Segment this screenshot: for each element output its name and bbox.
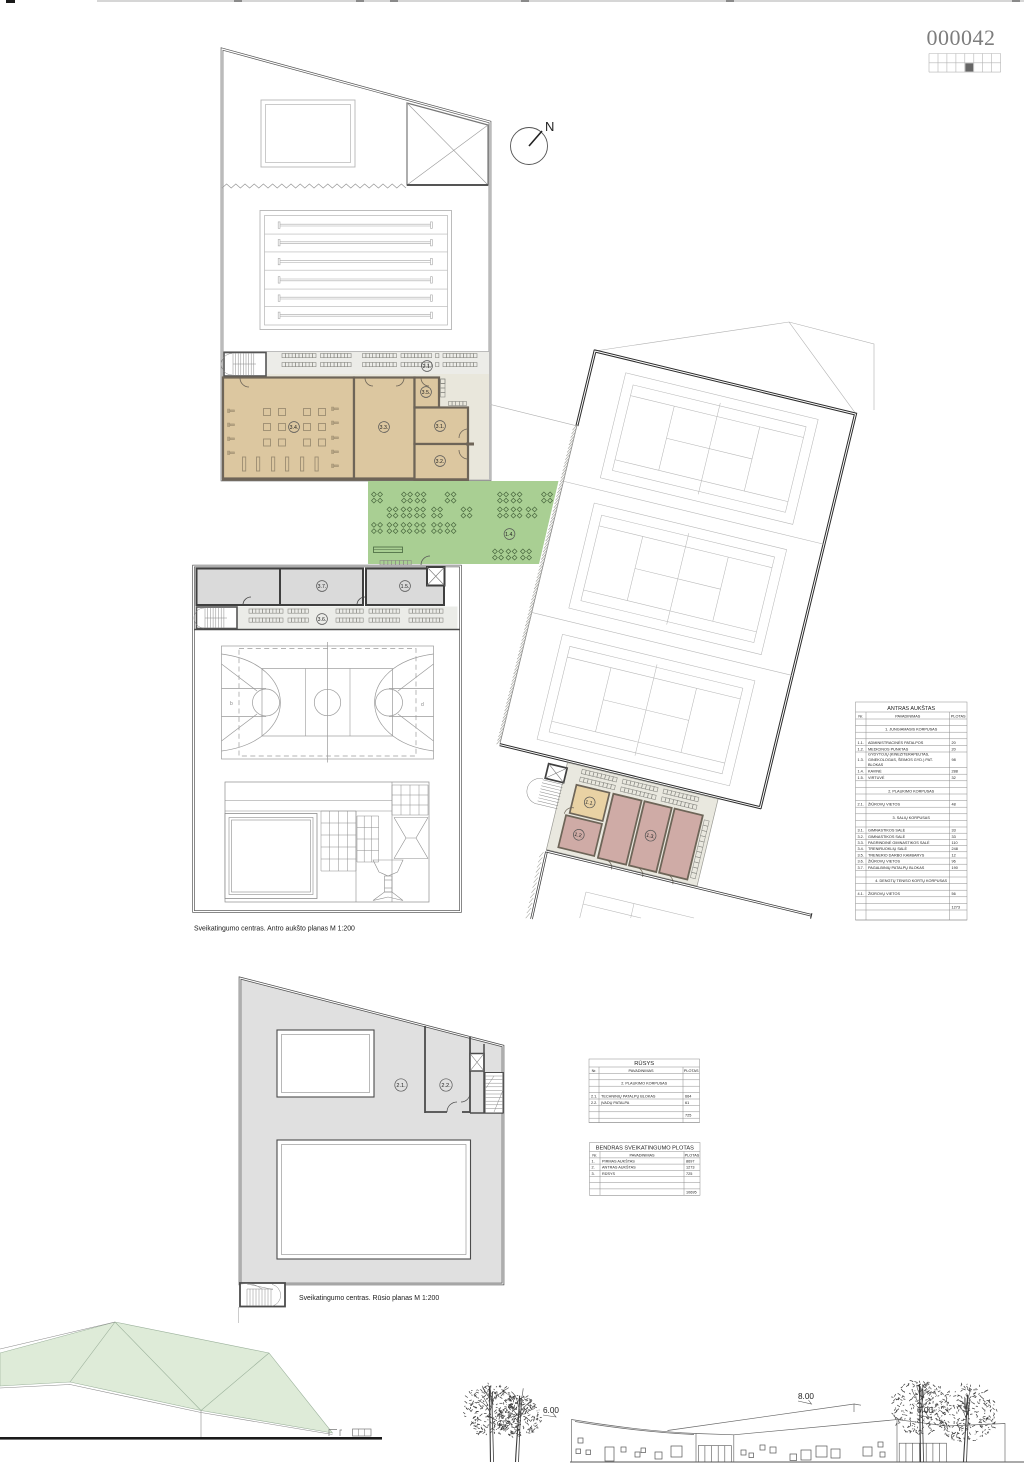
svg-text:PLOTAS: PLOTAS: [685, 1153, 700, 1157]
svg-text:96: 96: [952, 860, 956, 864]
svg-text:1273: 1273: [686, 1166, 694, 1170]
svg-text:3.6.: 3.6.: [318, 617, 327, 623]
svg-text:d: d: [421, 702, 424, 708]
svg-text:3.4.: 3.4.: [290, 425, 299, 431]
svg-text:12: 12: [952, 853, 956, 857]
svg-text:ŽIŪROVŲ VIETOS: ŽIŪROVŲ VIETOS: [868, 802, 900, 807]
svg-text:PAGRINDINĖ GIMNASTIKOS SALĖ: PAGRINDINĖ GIMNASTIKOS SALĖ: [868, 840, 930, 845]
svg-text:725: 725: [686, 1172, 692, 1176]
svg-text:20: 20: [952, 741, 956, 745]
svg-text:PLOTAS: PLOTAS: [951, 714, 966, 718]
svg-text:PAVADINIMAS: PAVADINIMAS: [895, 714, 921, 718]
svg-text:48: 48: [952, 803, 956, 807]
svg-text:Nr.: Nr.: [592, 1069, 597, 1073]
svg-text:190: 190: [952, 866, 958, 870]
svg-text:725: 725: [685, 1114, 691, 1118]
svg-text:b: b: [230, 701, 233, 707]
svg-text:2.1.: 2.1.: [591, 1094, 597, 1098]
svg-text:Nr.: Nr.: [592, 1153, 597, 1157]
svg-text:98: 98: [952, 758, 956, 762]
svg-text:8697: 8697: [686, 1160, 694, 1164]
svg-text:RŪSYS: RŪSYS: [634, 1060, 654, 1067]
svg-text:GYDYTOJŲ (KINEZITERAPEUTAS,: GYDYTOJŲ (KINEZITERAPEUTAS,: [868, 753, 929, 757]
svg-text:Nr.: Nr.: [858, 714, 863, 718]
svg-text:RŪSYS: RŪSYS: [602, 1172, 616, 1176]
svg-text:PAVADINIMAS: PAVADINIMAS: [629, 1153, 655, 1157]
svg-text:MEDICINOS PUNKTAS: MEDICINOS PUNKTAS: [868, 747, 909, 751]
svg-text:1273: 1273: [952, 905, 960, 909]
svg-text:TECHNINIŲ PATALPŲ BLOKAS: TECHNINIŲ PATALPŲ BLOKAS: [601, 1094, 656, 1098]
svg-text:3.1.: 3.1.: [436, 424, 445, 430]
svg-text:3.4.: 3.4.: [858, 847, 864, 851]
svg-text:10695: 10695: [686, 1191, 697, 1195]
svg-text:6.00: 6.00: [543, 1406, 559, 1415]
svg-text:1.3.: 1.3.: [858, 758, 864, 762]
svg-text:1.2.: 1.2.: [858, 747, 864, 751]
svg-text:1.: 1.: [592, 1160, 595, 1164]
svg-text:56: 56: [952, 892, 956, 896]
svg-text:288: 288: [952, 770, 958, 774]
svg-text:3.: 3.: [592, 1172, 595, 1176]
svg-text:664: 664: [685, 1094, 691, 1098]
svg-text:3.3.: 3.3.: [380, 425, 389, 431]
svg-text:3.7.: 3.7.: [858, 866, 864, 870]
svg-text:20: 20: [952, 747, 956, 751]
svg-text:GINEKOLOGAS, ŠEIMOS GYD.) PAT.: GINEKOLOGAS, ŠEIMOS GYD.) PAT.: [868, 757, 933, 762]
svg-text:2.2.: 2.2.: [441, 1083, 451, 1089]
svg-text:ANTRAS AUKŠTAS: ANTRAS AUKŠTAS: [602, 1165, 636, 1170]
svg-text:3.6.: 3.6.: [858, 860, 864, 864]
svg-text:ŽIŪROVŲ VIETOS: ŽIŪROVŲ VIETOS: [868, 859, 900, 864]
svg-text:PLOTAS: PLOTAS: [684, 1069, 699, 1073]
svg-text:Sveikatingumo centras. Antro a: Sveikatingumo centras. Antro aukšto plan…: [194, 926, 355, 933]
svg-text:1.5.: 1.5.: [858, 776, 864, 780]
svg-text:PAGALBINIŲ PATALPŲ BLOKAS: PAGALBINIŲ PATALPŲ BLOKAS: [868, 866, 925, 870]
svg-text:ŽIŪROVŲ VIETOS: ŽIŪROVŲ VIETOS: [868, 891, 900, 896]
svg-text:2.: 2.: [592, 1166, 595, 1170]
svg-text:2.1.: 2.1.: [858, 803, 864, 807]
svg-text:1. JUNGIAMASIS KORPUSAS: 1. JUNGIAMASIS KORPUSAS: [885, 728, 938, 732]
svg-text:32: 32: [952, 776, 956, 780]
svg-text:33: 33: [952, 835, 956, 839]
svg-text:ADMINISTRACINĖS PATALPOS: ADMINISTRACINĖS PATALPOS: [868, 740, 924, 745]
svg-text:61: 61: [685, 1101, 689, 1105]
svg-text:2.2.: 2.2.: [591, 1101, 597, 1105]
svg-text:33: 33: [952, 829, 956, 833]
svg-text:3.2.: 3.2.: [858, 835, 864, 839]
svg-text:3.5.: 3.5.: [858, 853, 864, 857]
svg-text:BLOKAS: BLOKAS: [868, 763, 884, 767]
svg-text:1.4.: 1.4.: [858, 770, 864, 774]
svg-text:KAVINĖ: KAVINĖ: [868, 769, 882, 774]
svg-text:3.7.: 3.7.: [318, 584, 327, 590]
svg-text:GIMNASTIKOS SALĖ: GIMNASTIKOS SALĖ: [868, 834, 906, 839]
svg-text:2.1.: 2.1.: [396, 1083, 406, 1089]
svg-text:2. PLAUKIMO KORPUSAS: 2. PLAUKIMO KORPUSAS: [888, 789, 934, 793]
svg-text:1.5.: 1.5.: [401, 584, 410, 590]
svg-text:PAVADINIMAS: PAVADINIMAS: [628, 1069, 654, 1073]
svg-text:000042: 000042: [927, 25, 996, 50]
svg-text:1.4.: 1.4.: [505, 532, 514, 538]
svg-text:N: N: [545, 119, 554, 134]
svg-text:3.1.: 3.1.: [858, 829, 864, 833]
svg-text:3.5.: 3.5.: [422, 390, 431, 396]
svg-text:2. PLAUKIMO KORPUSAS: 2. PLAUKIMO KORPUSAS: [621, 1082, 667, 1086]
svg-text:ĮVADŲ PATALPA: ĮVADŲ PATALPA: [601, 1101, 630, 1105]
svg-text:Sveikatingumo centras. Rūsio p: Sveikatingumo centras. Rūsio planas M 1:…: [299, 1295, 439, 1302]
svg-text:TRENIRUOKLIŲ SALĖ: TRENIRUOKLIŲ SALĖ: [868, 846, 908, 851]
svg-text:BENDRAS SVEIKATINGUMO PLOTAS: BENDRAS SVEIKATINGUMO PLOTAS: [596, 1146, 694, 1152]
svg-text:4. DENGTŲ TENISO KORTŲ KORPUSA: 4. DENGTŲ TENISO KORTŲ KORPUSAS: [875, 879, 947, 883]
svg-text:PIRMAS AUKŠTAS: PIRMAS AUKŠTAS: [602, 1159, 635, 1164]
svg-text:4.1.: 4.1.: [858, 892, 864, 896]
svg-text:110: 110: [952, 841, 958, 845]
svg-text:2.1.: 2.1.: [423, 364, 432, 370]
svg-text:8.00: 8.00: [798, 1392, 814, 1401]
svg-text:ANTRAS AUKŠTAS: ANTRAS AUKŠTAS: [887, 705, 935, 712]
svg-text:3.2.: 3.2.: [436, 459, 445, 465]
svg-text:248: 248: [952, 847, 958, 851]
svg-text:3. SALIŲ KORPUSAS: 3. SALIŲ KORPUSAS: [893, 816, 931, 820]
svg-text:VIRTUVĖ: VIRTUVĖ: [868, 775, 885, 780]
svg-text:TRENERIO DARBO KAMBARYS: TRENERIO DARBO KAMBARYS: [868, 853, 925, 857]
svg-text:GIMNASTIKOS SALĖ: GIMNASTIKOS SALĖ: [868, 828, 906, 833]
svg-text:1.1.: 1.1.: [858, 741, 864, 745]
svg-text:3.3.: 3.3.: [858, 841, 864, 845]
